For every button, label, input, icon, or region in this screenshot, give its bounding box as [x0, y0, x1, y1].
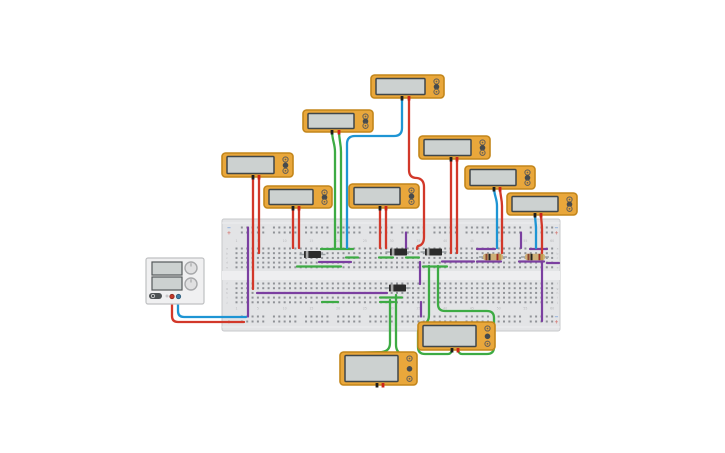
breadboard-hole[interactable]	[321, 232, 323, 234]
multimeter-2[interactable]	[303, 110, 373, 135]
breadboard-hole[interactable]	[353, 283, 355, 285]
breadboard-hole[interactable]	[241, 301, 243, 303]
breadboard-hole[interactable]	[498, 283, 500, 285]
wire-mm8-red[interactable]	[541, 213, 542, 253]
breadboard-hole[interactable]	[262, 321, 264, 323]
breadboard-hole[interactable]	[273, 232, 275, 234]
multimeter-8[interactable]	[507, 193, 577, 218]
breadboard-hole[interactable]	[444, 292, 446, 294]
breadboard-hole[interactable]	[476, 266, 478, 268]
breadboard-hole[interactable]	[369, 252, 371, 254]
breadboard-hole[interactable]	[305, 283, 307, 285]
breadboard-hole[interactable]	[482, 252, 484, 254]
breadboard-hole[interactable]	[471, 283, 473, 285]
breadboard-hole[interactable]	[412, 321, 414, 323]
breadboard-hole[interactable]	[412, 232, 414, 234]
breadboard-hole[interactable]	[337, 252, 339, 254]
breadboard-hole[interactable]	[278, 321, 280, 323]
breadboard-hole[interactable]	[380, 283, 382, 285]
breadboard-hole[interactable]	[417, 292, 419, 294]
breadboard-hole[interactable]	[530, 301, 532, 303]
breadboard-hole[interactable]	[476, 227, 478, 229]
breadboard-hole[interactable]	[417, 227, 419, 229]
breadboard-hole[interactable]	[460, 292, 462, 294]
breadboard-hole[interactable]	[294, 232, 296, 234]
breadboard-hole[interactable]	[343, 252, 345, 254]
breadboard-hole[interactable]	[508, 292, 510, 294]
breadboard-hole[interactable]	[514, 248, 516, 250]
breadboard-hole[interactable]	[353, 316, 355, 318]
breadboard-hole[interactable]	[455, 257, 457, 259]
multimeter-7[interactable]	[465, 166, 535, 192]
breadboard-hole[interactable]	[482, 301, 484, 303]
breadboard-hole[interactable]	[278, 257, 280, 259]
breadboard-hole[interactable]	[316, 297, 318, 299]
breadboard-hole[interactable]	[353, 321, 355, 323]
breadboard-hole[interactable]	[262, 232, 264, 234]
breadboard-hole[interactable]	[514, 321, 516, 323]
breadboard-hole[interactable]	[364, 301, 366, 303]
breadboard-hole[interactable]	[433, 232, 435, 234]
breadboard-hole[interactable]	[530, 232, 532, 234]
breadboard-hole[interactable]	[492, 297, 494, 299]
breadboard-hole[interactable]	[466, 227, 468, 229]
breadboard-hole[interactable]	[273, 257, 275, 259]
breadboard-hole[interactable]	[353, 297, 355, 299]
breadboard-hole[interactable]	[519, 257, 521, 259]
breadboard-hole[interactable]	[391, 227, 393, 229]
breadboard-hole[interactable]	[498, 316, 500, 318]
multimeter-9[interactable]	[418, 322, 495, 353]
breadboard-hole[interactable]	[412, 262, 414, 264]
breadboard-hole[interactable]	[450, 283, 452, 285]
breadboard-hole[interactable]	[433, 316, 435, 318]
breadboard-hole[interactable]	[519, 297, 521, 299]
breadboard-hole[interactable]	[423, 292, 425, 294]
breadboard-hole[interactable]	[300, 257, 302, 259]
breadboard-hole[interactable]	[332, 287, 334, 289]
breadboard-hole[interactable]	[278, 301, 280, 303]
breadboard-hole[interactable]	[289, 257, 291, 259]
breadboard-hole[interactable]	[359, 283, 361, 285]
breadboard-hole[interactable]	[273, 252, 275, 254]
breadboard-hole[interactable]	[508, 297, 510, 299]
breadboard-hole[interactable]	[278, 287, 280, 289]
breadboard-hole[interactable]	[310, 287, 312, 289]
breadboard-hole[interactable]	[289, 301, 291, 303]
breadboard-hole[interactable]	[466, 297, 468, 299]
breadboard-hole[interactable]	[289, 248, 291, 250]
breadboard-hole[interactable]	[482, 297, 484, 299]
black-probe-terminal[interactable]	[493, 187, 496, 192]
breadboard-hole[interactable]	[466, 232, 468, 234]
psu-negative-terminal[interactable]	[176, 294, 180, 298]
breadboard-hole[interactable]	[284, 301, 286, 303]
breadboard-hole[interactable]	[305, 297, 307, 299]
breadboard-hole[interactable]	[268, 283, 270, 285]
breadboard-hole[interactable]	[551, 292, 553, 294]
multimeter-1[interactable]	[371, 75, 444, 101]
breadboard-hole[interactable]	[412, 248, 414, 250]
breadboard-hole[interactable]	[364, 252, 366, 254]
breadboard-hole[interactable]	[252, 292, 254, 294]
breadboard-hole[interactable]	[321, 287, 323, 289]
breadboard-hole[interactable]	[246, 321, 248, 323]
breadboard-hole[interactable]	[380, 266, 382, 268]
breadboard-hole[interactable]	[455, 301, 457, 303]
breadboard-hole[interactable]	[433, 283, 435, 285]
breadboard-hole[interactable]	[326, 232, 328, 234]
breadboard-hole[interactable]	[241, 287, 243, 289]
breadboard-hole[interactable]	[241, 227, 243, 229]
breadboard-hole[interactable]	[551, 301, 553, 303]
black-probe-terminal[interactable]	[451, 348, 454, 353]
breadboard-hole[interactable]	[471, 301, 473, 303]
breadboard-hole[interactable]	[326, 227, 328, 229]
breadboard-hole[interactable]	[310, 321, 312, 323]
breadboard-hole[interactable]	[401, 292, 403, 294]
breadboard-hole[interactable]	[551, 321, 553, 323]
breadboard-hole[interactable]	[498, 301, 500, 303]
breadboard-hole[interactable]	[236, 257, 238, 259]
breadboard-hole[interactable]	[492, 287, 494, 289]
breadboard-hole[interactable]	[300, 283, 302, 285]
breadboard-hole[interactable]	[316, 227, 318, 229]
breadboard-hole[interactable]	[476, 316, 478, 318]
breadboard-hole[interactable]	[316, 321, 318, 323]
breadboard-hole[interactable]	[289, 321, 291, 323]
breadboard-hole[interactable]	[401, 262, 403, 264]
breadboard-hole[interactable]	[252, 316, 254, 318]
breadboard-hole[interactable]	[450, 287, 452, 289]
breadboard-hole[interactable]	[401, 316, 403, 318]
breadboard-hole[interactable]	[321, 227, 323, 229]
breadboard-hole[interactable]	[326, 287, 328, 289]
breadboard-hole[interactable]	[348, 252, 350, 254]
breadboard-hole[interactable]	[268, 248, 270, 250]
breadboard-hole[interactable]	[294, 321, 296, 323]
breadboard-hole[interactable]	[428, 257, 430, 259]
black-probe-terminal[interactable]	[252, 175, 255, 180]
breadboard-hole[interactable]	[433, 301, 435, 303]
breadboard-hole[interactable]	[476, 257, 478, 259]
multimeter-6[interactable]	[419, 136, 490, 162]
multimeter-5[interactable]	[349, 184, 419, 211]
breadboard-hole[interactable]	[503, 283, 505, 285]
breadboard-hole[interactable]	[530, 321, 532, 323]
breadboard-hole[interactable]	[444, 257, 446, 259]
breadboard-hole[interactable]	[289, 252, 291, 254]
breadboard-hole[interactable]	[530, 287, 532, 289]
breadboard-hole[interactable]	[524, 266, 526, 268]
breadboard-hole[interactable]	[364, 283, 366, 285]
breadboard-hole[interactable]	[514, 252, 516, 254]
breadboard-hole[interactable]	[316, 232, 318, 234]
breadboard-hole[interactable]	[450, 292, 452, 294]
breadboard-hole[interactable]	[305, 248, 307, 250]
breadboard-hole[interactable]	[482, 316, 484, 318]
breadboard-hole[interactable]	[278, 283, 280, 285]
breadboard-hole[interactable]	[535, 287, 537, 289]
breadboard-hole[interactable]	[375, 227, 377, 229]
breadboard-hole[interactable]	[268, 257, 270, 259]
breadboard-hole[interactable]	[439, 316, 441, 318]
breadboard-hole[interactable]	[353, 266, 355, 268]
breadboard-hole[interactable]	[503, 252, 505, 254]
breadboard-hole[interactable]	[294, 227, 296, 229]
breadboard-hole[interactable]	[284, 283, 286, 285]
breadboard-hole[interactable]	[498, 287, 500, 289]
breadboard-hole[interactable]	[401, 321, 403, 323]
breadboard-hole[interactable]	[332, 283, 334, 285]
breadboard-hole[interactable]	[524, 283, 526, 285]
breadboard-hole[interactable]	[284, 252, 286, 254]
breadboard-hole[interactable]	[278, 252, 280, 254]
breadboard-hole[interactable]	[284, 232, 286, 234]
breadboard-hole[interactable]	[257, 316, 259, 318]
breadboard-hole[interactable]	[278, 262, 280, 264]
breadboard-hole[interactable]	[252, 321, 254, 323]
breadboard-hole[interactable]	[310, 283, 312, 285]
breadboard-hole[interactable]	[423, 283, 425, 285]
breadboard-hole[interactable]	[530, 227, 532, 229]
breadboard-hole[interactable]	[466, 248, 468, 250]
breadboard-hole[interactable]	[514, 266, 516, 268]
breadboard-hole[interactable]	[401, 301, 403, 303]
breadboard-hole[interactable]	[519, 252, 521, 254]
breadboard-hole[interactable]	[321, 257, 323, 259]
breadboard-hole[interactable]	[551, 252, 553, 254]
breadboard-hole[interactable]	[369, 262, 371, 264]
breadboard-hole[interactable]	[310, 316, 312, 318]
breadboard-hole[interactable]	[503, 292, 505, 294]
breadboard-hole[interactable]	[546, 283, 548, 285]
breadboard-hole[interactable]	[369, 283, 371, 285]
breadboard-hole[interactable]	[332, 257, 334, 259]
breadboard-hole[interactable]	[289, 297, 291, 299]
breadboard-hole[interactable]	[396, 266, 398, 268]
breadboard-hole[interactable]	[364, 248, 366, 250]
breadboard-hole[interactable]	[284, 227, 286, 229]
breadboard-hole[interactable]	[407, 283, 409, 285]
breadboard-hole[interactable]	[444, 283, 446, 285]
breadboard-hole[interactable]	[359, 266, 361, 268]
breadboard-hole[interactable]	[348, 283, 350, 285]
breadboard-hole[interactable]	[353, 301, 355, 303]
breadboard-hole[interactable]	[268, 262, 270, 264]
breadboard-hole[interactable]	[503, 227, 505, 229]
breadboard-hole[interactable]	[326, 321, 328, 323]
breadboard-hole[interactable]	[348, 297, 350, 299]
breadboard-hole[interactable]	[332, 297, 334, 299]
breadboard-hole[interactable]	[375, 257, 377, 259]
breadboard-hole[interactable]	[268, 252, 270, 254]
breadboard-hole[interactable]	[241, 248, 243, 250]
breadboard-hole[interactable]	[455, 316, 457, 318]
breadboard-hole[interactable]	[369, 316, 371, 318]
breadboard-hole[interactable]	[385, 321, 387, 323]
wire-mm8-blue[interactable]	[535, 213, 536, 248]
breadboard-hole[interactable]	[262, 266, 264, 268]
breadboard-hole[interactable]	[471, 297, 473, 299]
breadboard-hole[interactable]	[268, 297, 270, 299]
breadboard-hole[interactable]	[503, 301, 505, 303]
breadboard-hole[interactable]	[380, 316, 382, 318]
breadboard-hole[interactable]	[530, 266, 532, 268]
breadboard-hole[interactable]	[257, 262, 259, 264]
breadboard-hole[interactable]	[508, 252, 510, 254]
breadboard-hole[interactable]	[471, 232, 473, 234]
breadboard-hole[interactable]	[492, 301, 494, 303]
breadboard-hole[interactable]	[375, 283, 377, 285]
breadboard-hole[interactable]	[423, 297, 425, 299]
multimeter-mode-button[interactable]	[409, 194, 415, 200]
red-probe-terminal[interactable]	[540, 213, 543, 218]
breadboard-hole[interactable]	[460, 252, 462, 254]
breadboard-hole[interactable]	[337, 227, 339, 229]
breadboard-hole[interactable]	[492, 266, 494, 268]
breadboard-hole[interactable]	[316, 301, 318, 303]
breadboard-hole[interactable]	[316, 287, 318, 289]
breadboard-hole[interactable]	[294, 283, 296, 285]
breadboard-hole[interactable]	[466, 257, 468, 259]
breadboard-hole[interactable]	[524, 287, 526, 289]
breadboard-hole[interactable]	[466, 292, 468, 294]
breadboard-hole[interactable]	[353, 232, 355, 234]
breadboard-hole[interactable]	[337, 316, 339, 318]
breadboard-hole[interactable]	[257, 287, 259, 289]
multimeter-10[interactable]	[340, 352, 417, 388]
breadboard-hole[interactable]	[444, 301, 446, 303]
breadboard-hole[interactable]	[278, 297, 280, 299]
breadboard-hole[interactable]	[391, 266, 393, 268]
breadboard-hole[interactable]	[321, 321, 323, 323]
breadboard-hole[interactable]	[385, 262, 387, 264]
breadboard-hole[interactable]	[375, 248, 377, 250]
black-probe-terminal[interactable]	[376, 383, 379, 388]
breadboard-hole[interactable]	[343, 232, 345, 234]
breadboard-hole[interactable]	[401, 283, 403, 285]
breadboard-hole[interactable]	[348, 316, 350, 318]
breadboard-hole[interactable]	[262, 283, 264, 285]
breadboard-hole[interactable]	[466, 266, 468, 268]
breadboard-hole[interactable]	[412, 301, 414, 303]
breadboard-hole[interactable]	[407, 297, 409, 299]
breadboard-hole[interactable]	[375, 321, 377, 323]
breadboard-hole[interactable]	[503, 316, 505, 318]
breadboard-hole[interactable]	[236, 262, 238, 264]
breadboard-hole[interactable]	[326, 297, 328, 299]
breadboard-hole[interactable]	[546, 297, 548, 299]
breadboard-hole[interactable]	[439, 227, 441, 229]
breadboard-hole[interactable]	[289, 262, 291, 264]
breadboard-hole[interactable]	[396, 292, 398, 294]
breadboard-hole[interactable]	[343, 257, 345, 259]
breadboard-hole[interactable]	[444, 232, 446, 234]
black-probe-terminal[interactable]	[450, 157, 453, 162]
breadboard-hole[interactable]	[273, 321, 275, 323]
breadboard-hole[interactable]	[289, 232, 291, 234]
breadboard-hole[interactable]	[476, 301, 478, 303]
breadboard-hole[interactable]	[471, 287, 473, 289]
breadboard-hole[interactable]	[273, 262, 275, 264]
breadboard-hole[interactable]	[471, 257, 473, 259]
breadboard-hole[interactable]	[268, 301, 270, 303]
breadboard-hole[interactable]	[460, 287, 462, 289]
breadboard-hole[interactable]	[273, 266, 275, 268]
breadboard-hole[interactable]	[236, 287, 238, 289]
breadboard-hole[interactable]	[359, 227, 361, 229]
breadboard-hole[interactable]	[471, 248, 473, 250]
red-probe-terminal[interactable]	[338, 130, 341, 135]
breadboard-hole[interactable]	[433, 257, 435, 259]
red-probe-terminal[interactable]	[499, 187, 502, 192]
multimeter-mode-button[interactable]	[485, 334, 491, 340]
breadboard-hole[interactable]	[310, 227, 312, 229]
breadboard-hole[interactable]	[482, 266, 484, 268]
breadboard-hole[interactable]	[380, 321, 382, 323]
breadboard-hole[interactable]	[546, 287, 548, 289]
breadboard-hole[interactable]	[241, 266, 243, 268]
breadboard-hole[interactable]	[375, 232, 377, 234]
breadboard-hole[interactable]	[294, 252, 296, 254]
breadboard-hole[interactable]	[546, 321, 548, 323]
breadboard-hole[interactable]	[514, 232, 516, 234]
breadboard-hole[interactable]	[412, 266, 414, 268]
breadboard-hole[interactable]	[514, 301, 516, 303]
breadboard-hole[interactable]	[444, 287, 446, 289]
breadboard-hole[interactable]	[369, 301, 371, 303]
breadboard-hole[interactable]	[310, 248, 312, 250]
breadboard-hole[interactable]	[455, 266, 457, 268]
breadboard-hole[interactable]	[284, 297, 286, 299]
breadboard-hole[interactable]	[391, 232, 393, 234]
breadboard-hole[interactable]	[530, 316, 532, 318]
breadboard-hole[interactable]	[460, 283, 462, 285]
breadboard-hole[interactable]	[498, 297, 500, 299]
breadboard-hole[interactable]	[375, 262, 377, 264]
breadboard-hole[interactable]	[310, 262, 312, 264]
red-probe-terminal[interactable]	[382, 383, 385, 388]
breadboard-hole[interactable]	[284, 262, 286, 264]
breadboard-hole[interactable]	[294, 301, 296, 303]
multimeter-3[interactable]	[222, 153, 293, 180]
breadboard-hole[interactable]	[546, 227, 548, 229]
breadboard-hole[interactable]	[305, 262, 307, 264]
breadboard-hole[interactable]	[471, 227, 473, 229]
breadboard-hole[interactable]	[407, 316, 409, 318]
breadboard-hole[interactable]	[466, 301, 468, 303]
breadboard-hole[interactable]	[487, 266, 489, 268]
breadboard-hole[interactable]	[321, 297, 323, 299]
breadboard-hole[interactable]	[433, 227, 435, 229]
breadboard-hole[interactable]	[257, 297, 259, 299]
breadboard-hole[interactable]	[508, 321, 510, 323]
psu-positive-terminal[interactable]	[170, 294, 174, 298]
breadboard-hole[interactable]	[278, 316, 280, 318]
breadboard-hole[interactable]	[487, 292, 489, 294]
breadboard-hole[interactable]	[364, 262, 366, 264]
breadboard-hole[interactable]	[460, 266, 462, 268]
breadboard-hole[interactable]	[343, 301, 345, 303]
breadboard-hole[interactable]	[482, 292, 484, 294]
breadboard-hole[interactable]	[503, 262, 505, 264]
breadboard-hole[interactable]	[508, 227, 510, 229]
breadboard-hole[interactable]	[412, 297, 414, 299]
breadboard-hole[interactable]	[273, 283, 275, 285]
breadboard-hole[interactable]	[508, 262, 510, 264]
breadboard-hole[interactable]	[396, 257, 398, 259]
